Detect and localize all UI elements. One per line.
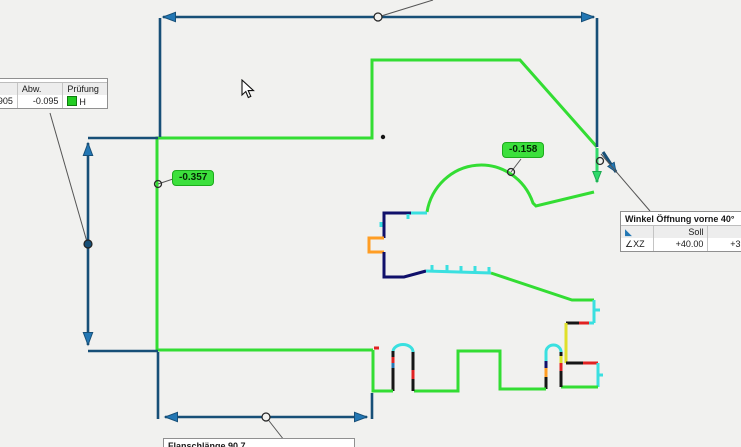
green-square-icon xyxy=(67,96,77,106)
orange-deviation-segment xyxy=(369,238,384,252)
angle-ist-value: +39.97 xyxy=(708,238,741,251)
value-pruefung: H xyxy=(63,95,107,108)
angle-row-label: ∠XZ xyxy=(621,238,654,251)
deviation-flag[interactable]: -0.357 xyxy=(172,170,214,186)
value-ist: +0.905 xyxy=(0,95,18,108)
col-header-soll: Soll xyxy=(654,226,709,238)
check-label: H xyxy=(79,97,86,107)
angle-tooltip-title: Winkel Öffnung vorne 40° xyxy=(621,212,741,226)
part-contour[interactable] xyxy=(157,60,603,391)
left-dimension[interactable] xyxy=(50,113,158,351)
deviation-value: -0.357 xyxy=(179,172,207,183)
angle-soll-value: +40.00 xyxy=(654,238,709,251)
col-header-ist xyxy=(0,83,18,95)
col-header-ist: Ist xyxy=(708,226,741,238)
length-result-tooltip[interactable]: Flanschlänge 90.7 xyxy=(163,438,355,447)
corner-triangle-icon: ◣ xyxy=(621,226,654,238)
dimension-anchor xyxy=(262,413,270,421)
bottom-dimension[interactable] xyxy=(158,352,372,440)
inspection-viewport: Abw. Prüfung +0.905 -0.095 H -0.357 -0.1… xyxy=(0,0,741,447)
col-header-pruefung: Prüfung xyxy=(63,83,107,95)
col-header-abw: Abw. xyxy=(18,83,63,95)
cyan-deviation-edge xyxy=(426,265,491,273)
deviation-flag[interactable]: -0.158 xyxy=(502,142,544,158)
angle-measurement[interactable] xyxy=(597,148,651,211)
angle-result-tooltip[interactable]: Winkel Öffnung vorne 40° ◣ Soll Ist ∠XZ … xyxy=(620,211,741,252)
length-tooltip-title: Flanschlänge 90.7 xyxy=(164,439,354,447)
result-table[interactable]: Abw. Prüfung +0.905 -0.095 H xyxy=(0,78,108,109)
mouse-cursor-icon xyxy=(241,79,255,104)
value-abw: -0.095 xyxy=(18,95,63,108)
deviation-value: -0.158 xyxy=(509,144,537,155)
contour-point-dot xyxy=(381,135,385,139)
dimension-anchor xyxy=(84,240,92,248)
dimension-anchor xyxy=(374,13,382,21)
